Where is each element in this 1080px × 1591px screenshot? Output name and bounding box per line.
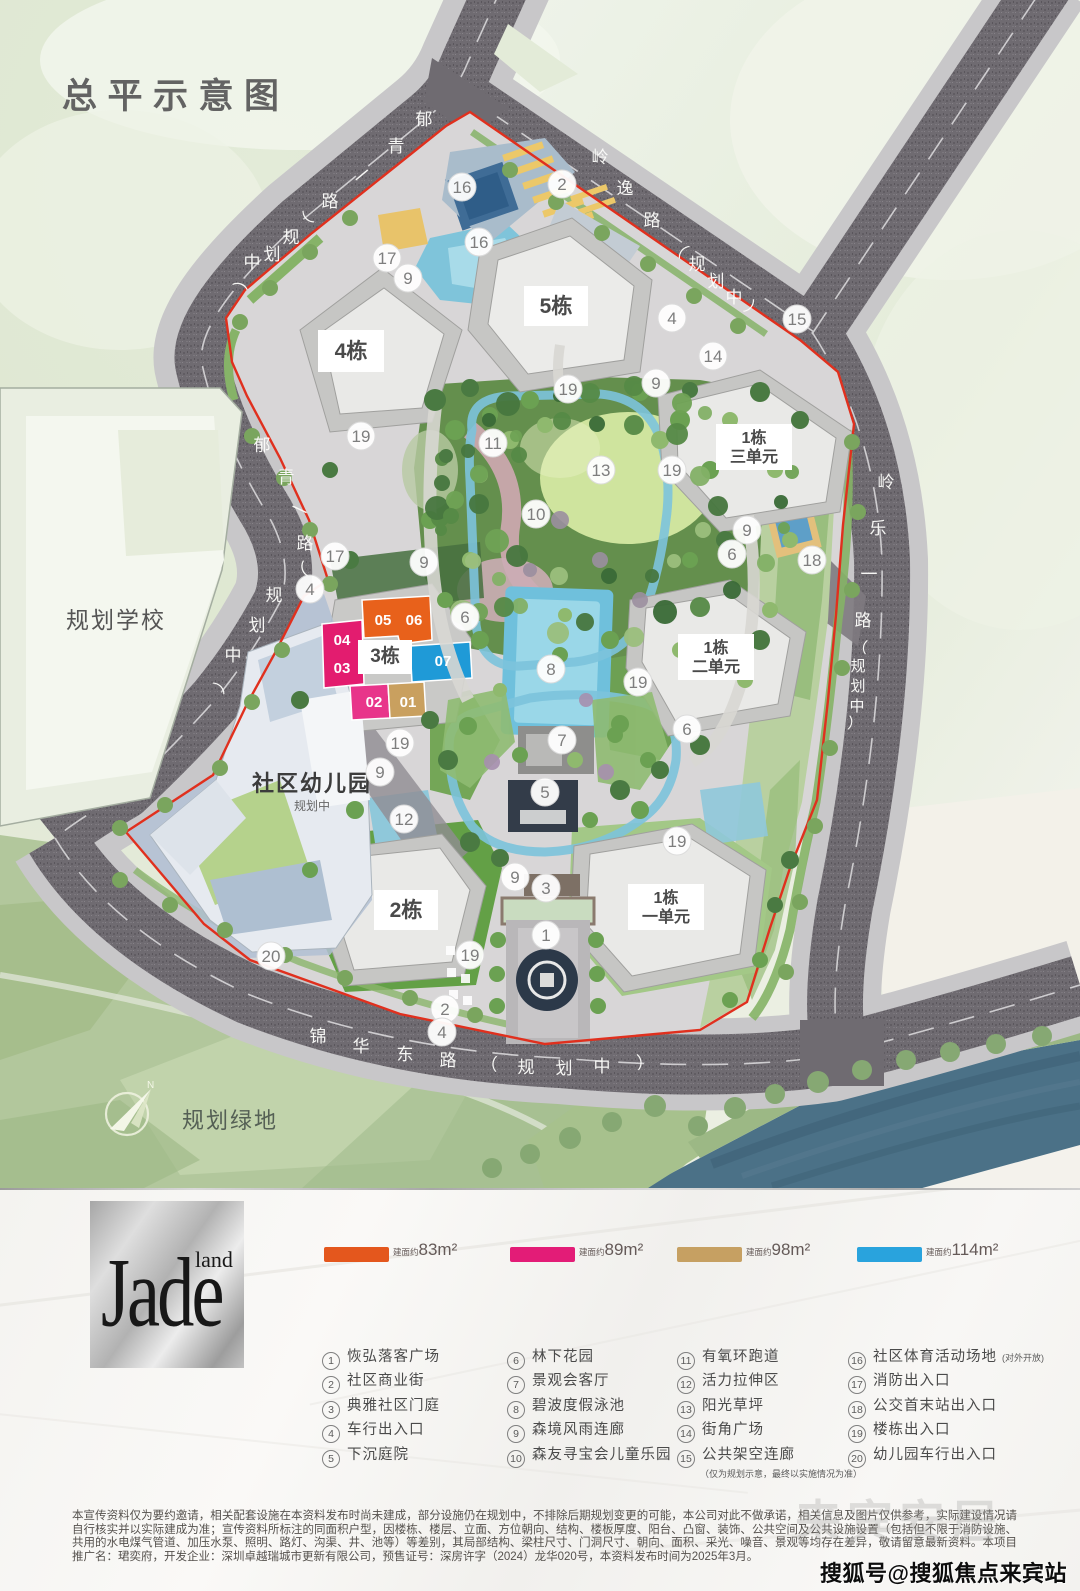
svg-text:路: 路 (322, 192, 339, 211)
svg-text:一: 一 (861, 565, 878, 584)
svg-text:9: 9 (651, 374, 660, 393)
svg-text:15: 15 (788, 310, 807, 329)
svg-text:二单元: 二单元 (692, 657, 740, 676)
svg-text:一单元: 一单元 (642, 907, 690, 926)
svg-text:规划绿地: 规划绿地 (182, 1108, 278, 1133)
svg-text:04: 04 (334, 632, 351, 649)
svg-text:7: 7 (557, 731, 566, 750)
svg-text:5: 5 (540, 783, 549, 802)
svg-text:12: 12 (395, 810, 414, 829)
svg-text:9: 9 (510, 868, 519, 887)
svg-text:划: 划 (850, 678, 865, 695)
svg-text:划: 划 (264, 245, 281, 264)
svg-text:N: N (147, 1080, 154, 1091)
svg-text:4栋: 4栋 (335, 339, 368, 363)
svg-text:中: 中 (849, 698, 864, 715)
svg-text:3: 3 (541, 879, 550, 898)
svg-text:19: 19 (391, 734, 410, 753)
svg-text:岭: 岭 (878, 473, 895, 492)
svg-text:中: 中 (726, 288, 743, 307)
svg-text:路: 路 (440, 1051, 457, 1070)
svg-text:19: 19 (352, 427, 371, 446)
svg-text:规划学校: 规划学校 (66, 607, 166, 633)
svg-text:06: 06 (406, 612, 423, 629)
svg-text:2栋: 2栋 (390, 898, 423, 922)
svg-text:16: 16 (470, 233, 489, 252)
svg-text:19: 19 (461, 946, 480, 965)
svg-text:）: ） (846, 715, 863, 734)
svg-text:07: 07 (435, 653, 452, 670)
svg-text:3栋: 3栋 (370, 644, 400, 667)
svg-text:9: 9 (742, 521, 751, 540)
svg-text:19: 19 (668, 832, 687, 851)
svg-text:（: （ (480, 1055, 498, 1075)
svg-text:规划中: 规划中 (294, 798, 330, 813)
svg-text:规: 规 (266, 586, 283, 605)
svg-text:9: 9 (403, 269, 412, 288)
svg-text:1: 1 (541, 926, 550, 945)
svg-text:1栋: 1栋 (704, 638, 729, 657)
svg-text:11: 11 (484, 434, 502, 453)
svg-text:划: 划 (249, 616, 266, 635)
svg-text:4: 4 (437, 1023, 446, 1042)
svg-text:19: 19 (559, 380, 578, 399)
svg-text:13: 13 (592, 461, 611, 480)
svg-text:青: 青 (278, 468, 295, 487)
svg-text:05: 05 (375, 612, 392, 629)
svg-text:华: 华 (353, 1037, 370, 1056)
svg-text:19: 19 (629, 673, 648, 692)
svg-text:）: ） (636, 1052, 655, 1072)
svg-text:总平示意图: 总平示意图 (62, 77, 290, 116)
svg-text:03: 03 (334, 660, 351, 677)
svg-text:中: 中 (594, 1057, 611, 1076)
svg-text:17: 17 (378, 249, 397, 268)
svg-text:岭: 岭 (592, 148, 609, 167)
svg-text:2: 2 (440, 1000, 449, 1019)
svg-text:规: 规 (689, 255, 706, 274)
svg-text:中: 中 (244, 253, 261, 272)
svg-text:8: 8 (546, 660, 555, 679)
svg-text:社区幼儿园: 社区幼儿园 (252, 771, 372, 796)
svg-text:14: 14 (704, 347, 723, 366)
svg-text:9: 9 (375, 763, 384, 782)
svg-text:1栋: 1栋 (742, 428, 767, 447)
svg-text:18: 18 (803, 551, 822, 570)
svg-text:20: 20 (262, 947, 281, 966)
svg-text:路: 路 (297, 534, 314, 553)
svg-text:划: 划 (708, 272, 725, 291)
svg-text:路: 路 (855, 611, 872, 630)
svg-text:9: 9 (419, 553, 428, 572)
svg-text:6: 6 (727, 545, 736, 564)
svg-text:三单元: 三单元 (730, 447, 778, 466)
svg-text:4: 4 (667, 309, 676, 328)
svg-text:10: 10 (527, 505, 546, 524)
svg-text:青: 青 (388, 137, 405, 156)
svg-text:郁: 郁 (416, 110, 433, 129)
svg-text:中: 中 (225, 646, 242, 665)
svg-text:逸: 逸 (617, 179, 634, 198)
svg-text:5栋: 5栋 (540, 294, 573, 318)
svg-text:东: 东 (397, 1045, 414, 1064)
svg-text:规: 规 (518, 1058, 535, 1077)
svg-text:2: 2 (557, 175, 566, 194)
svg-text:划: 划 (556, 1059, 573, 1078)
svg-text:乐: 乐 (870, 519, 887, 538)
svg-text:6: 6 (682, 720, 691, 739)
svg-text:路: 路 (644, 211, 661, 230)
svg-text:17: 17 (326, 547, 345, 566)
svg-text:16: 16 (453, 178, 472, 197)
svg-text:规: 规 (283, 228, 300, 247)
svg-text:规: 规 (850, 658, 865, 675)
svg-text:6: 6 (460, 608, 469, 627)
svg-text:01: 01 (400, 694, 417, 711)
svg-text:（: （ (851, 638, 868, 657)
svg-text:郁: 郁 (254, 436, 271, 455)
svg-text:02: 02 (366, 694, 383, 711)
svg-text:4: 4 (305, 580, 314, 599)
svg-text:锦: 锦 (310, 1027, 327, 1046)
svg-text:19: 19 (663, 461, 682, 480)
svg-text:1栋: 1栋 (654, 888, 679, 907)
